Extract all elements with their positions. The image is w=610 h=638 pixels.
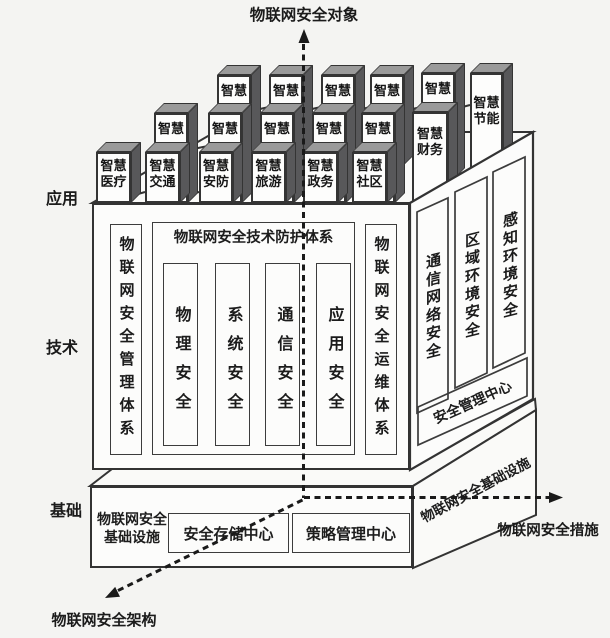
up-arrowhead-icon xyxy=(299,29,310,43)
regional-security-label: 区域环境安全 xyxy=(461,229,482,342)
protection-system-title: 物联网安全技术防护体系 xyxy=(153,226,354,246)
smart-box-finance: 智慧 财务 xyxy=(412,102,448,210)
box-side-face xyxy=(233,142,243,203)
perception-security-side-text: 感知环境安全 xyxy=(493,166,525,366)
system-security-label: 系统安全 xyxy=(221,264,245,422)
application-layer-label: 应用 xyxy=(42,185,82,203)
foundation-layer-label: 基础 xyxy=(46,497,86,515)
smart-box-energy: 智慧 节能 xyxy=(470,63,503,175)
technology-layer-label: 技术 xyxy=(42,334,82,352)
iot-security-architecture-diagram: 智慧 智慧 智慧 智慧 智慧 智慧 节能 智慧 智慧 智慧 智慧 智慧 智慧 财… xyxy=(0,0,610,638)
application-security-column: 应用安全 xyxy=(316,263,351,446)
foundation-label: 物联网安全 基础设施 xyxy=(92,510,172,552)
perception-security-label: 感知环境安全 xyxy=(499,209,520,322)
box-side-face xyxy=(180,142,190,203)
foundation-panel: 物联网安全 基础设施 安全存储中心 策略管理中心 xyxy=(90,486,413,568)
communication-security-label: 通信安全 xyxy=(271,264,295,422)
smart-box-transport: 智慧 交通 xyxy=(145,142,180,203)
protection-system-box: 物联网安全技术防护体系 物理安全 系统安全 通信安全 应用安全 xyxy=(152,222,355,455)
physical-security-label: 物理安全 xyxy=(169,264,193,422)
policy-center-label: 策略管理中心 xyxy=(306,523,396,544)
storage-center-label: 安全存储中心 xyxy=(183,523,273,544)
regional-security-side-text: 区域环境安全 xyxy=(455,186,487,386)
management-system-column: 物联网安全管理体系 xyxy=(110,224,142,455)
architecture-axis-label: 物联网安全架构 xyxy=(44,609,164,626)
right-arrowhead-icon xyxy=(549,492,563,503)
measures-axis-label: 物联网安全措施 xyxy=(490,519,606,536)
box-side-face xyxy=(387,142,397,203)
network-security-label: 通信网络安全 xyxy=(422,250,443,363)
operation-system-label: 物联网安全运维体系 xyxy=(371,236,392,443)
smart-box-medical: 智慧 医疗 xyxy=(96,142,131,203)
physical-security-column: 物理安全 xyxy=(163,263,198,446)
top-axis-label: 物联网安全对象 xyxy=(236,3,372,20)
box-side-face xyxy=(131,142,141,203)
smart-box-label: 智慧 财务 xyxy=(412,112,448,210)
technology-panel: 物联网安全管理体系 物联网安全技术防护体系 物理安全 系统安全 通信安全 应用安… xyxy=(92,203,410,470)
box-side-face xyxy=(286,142,296,203)
smart-box-label: 智慧 节能 xyxy=(470,73,503,175)
smart-box-security: 智慧 安防 xyxy=(199,142,233,203)
box-side-face xyxy=(338,142,348,203)
management-system-label: 物联网安全管理体系 xyxy=(116,236,137,443)
smart-box-label: 智慧 政务 xyxy=(303,152,338,203)
smart-box-label: 智慧 旅游 xyxy=(251,152,286,203)
smart-box-tourism: 智慧 旅游 xyxy=(251,142,286,203)
smart-box-label: 智慧 医疗 xyxy=(96,152,131,203)
smart-box-government: 智慧 政务 xyxy=(303,142,338,203)
storage-center-box: 安全存储中心 xyxy=(168,513,289,553)
smart-box-community: 智慧 社区 xyxy=(352,142,387,203)
down-left-arrowhead-icon xyxy=(103,587,120,603)
application-security-label: 应用安全 xyxy=(322,264,346,422)
communication-security-column: 通信安全 xyxy=(265,263,300,446)
policy-center-box: 策略管理中心 xyxy=(292,513,410,553)
smart-box-label: 智慧 安防 xyxy=(199,152,233,203)
smart-box-label: 智慧 交通 xyxy=(145,152,180,203)
box-side-face xyxy=(503,63,513,175)
system-security-column: 系统安全 xyxy=(215,263,250,446)
operation-system-column: 物联网安全运维体系 xyxy=(365,224,397,455)
network-security-side-text: 通信网络安全 xyxy=(417,207,448,407)
smart-box-label: 智慧 社区 xyxy=(352,152,387,203)
